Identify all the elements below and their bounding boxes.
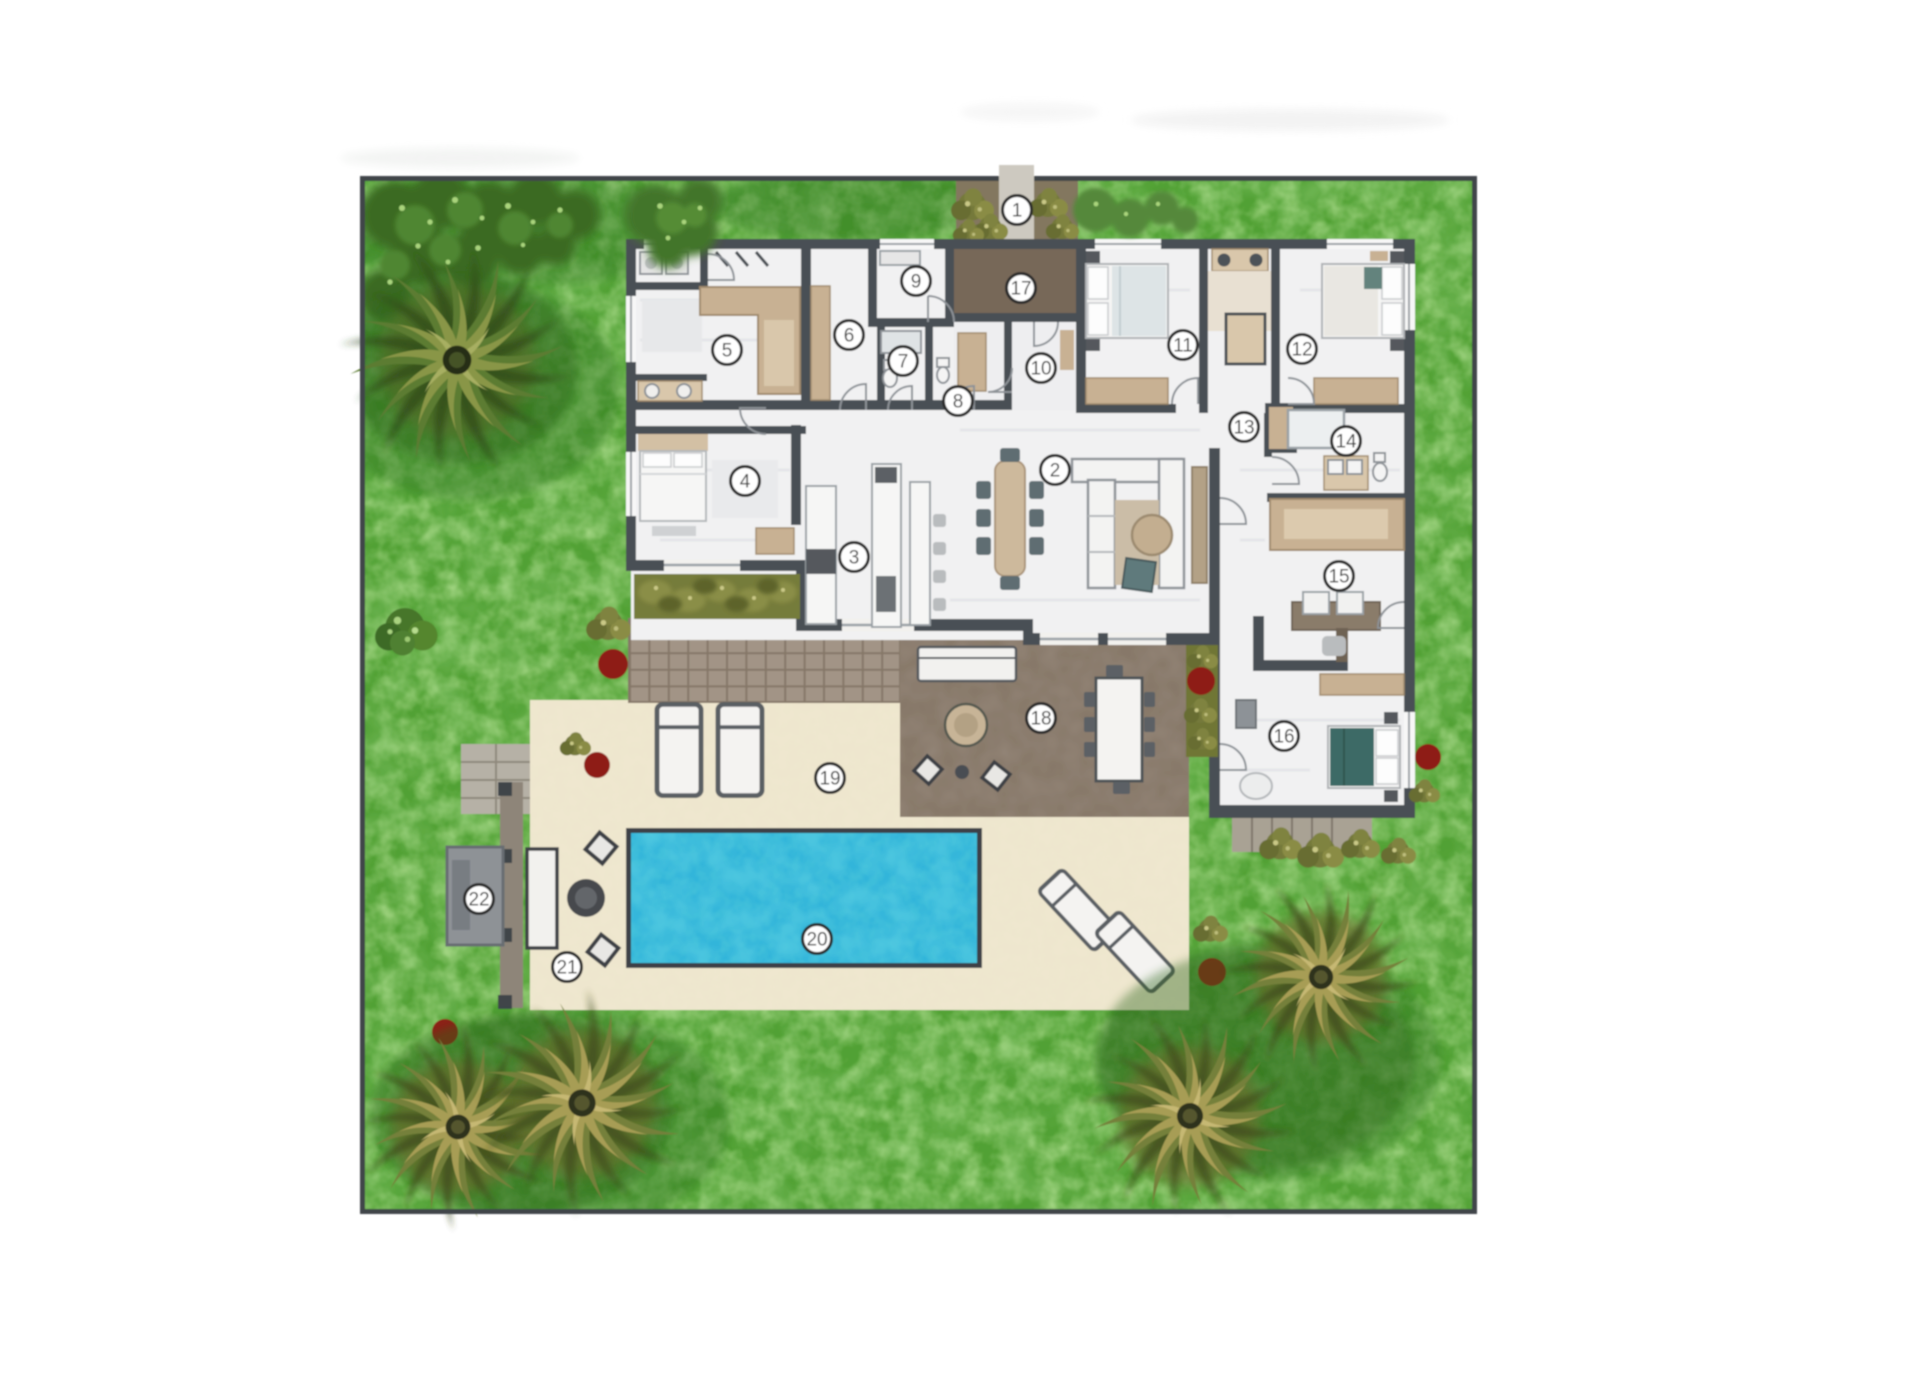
svg-text:7: 7 bbox=[898, 352, 909, 373]
svg-text:19: 19 bbox=[819, 769, 840, 790]
svg-text:8: 8 bbox=[953, 392, 964, 413]
svg-text:4: 4 bbox=[740, 472, 751, 493]
svg-text:1: 1 bbox=[1012, 201, 1023, 222]
svg-text:16: 16 bbox=[1273, 727, 1294, 748]
svg-text:17: 17 bbox=[1010, 279, 1031, 300]
svg-text:21: 21 bbox=[556, 958, 577, 979]
svg-text:10: 10 bbox=[1030, 359, 1051, 380]
svg-text:11: 11 bbox=[1173, 336, 1193, 357]
svg-text:20: 20 bbox=[806, 930, 827, 951]
svg-text:6: 6 bbox=[844, 326, 855, 347]
svg-text:13: 13 bbox=[1233, 418, 1254, 439]
svg-text:18: 18 bbox=[1030, 709, 1051, 730]
svg-text:2: 2 bbox=[1050, 461, 1061, 482]
svg-text:5: 5 bbox=[722, 341, 733, 362]
svg-text:22: 22 bbox=[468, 890, 489, 911]
svg-text:14: 14 bbox=[1335, 432, 1357, 453]
svg-text:9: 9 bbox=[911, 272, 922, 293]
svg-text:15: 15 bbox=[1328, 567, 1349, 588]
svg-text:3: 3 bbox=[849, 548, 860, 569]
svg-text:12: 12 bbox=[1291, 340, 1312, 361]
